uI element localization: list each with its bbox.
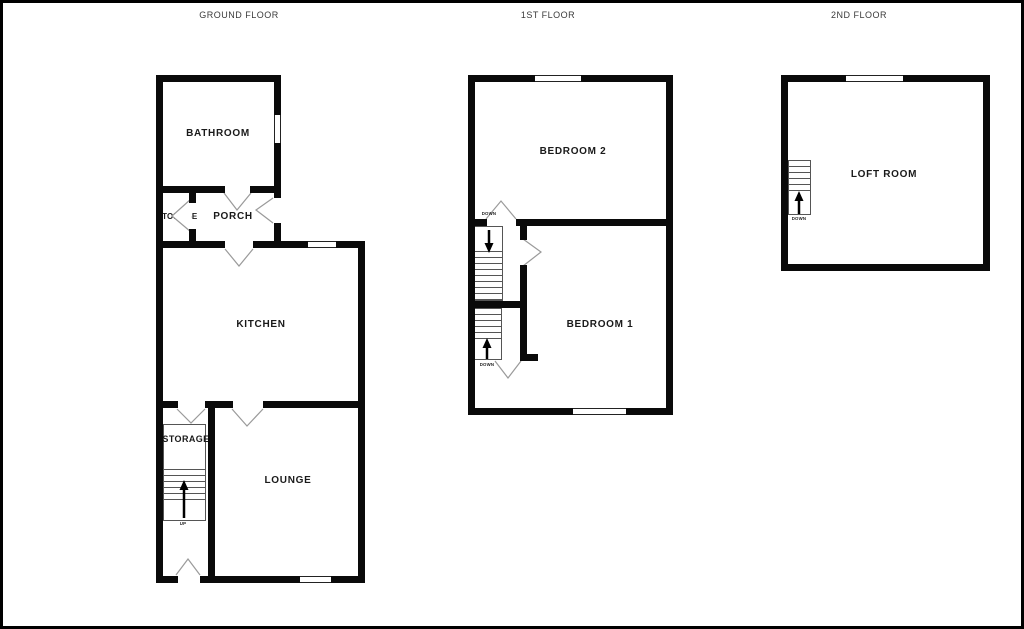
up-arrow-icon [482,338,492,360]
floor-title-ground: GROUND FLOOR [169,10,309,20]
wall-segment [156,75,281,82]
door-arc-porch-kitchen [224,248,255,268]
wall-segment [156,241,225,248]
stair-treads [472,251,503,301]
door-arc-front-entry [175,558,202,577]
window-bedroom1 [573,408,626,415]
wall-segment [156,576,178,583]
wall-segment [520,354,538,361]
wall-segment [903,75,990,82]
wall-segment [781,75,846,82]
down-arrow-icon [484,229,494,253]
room-label-porch: PORCH [198,211,268,222]
door-arc-bedroom2 [485,200,518,221]
wall-segment [263,401,365,408]
door-arc-lounge [231,408,265,428]
wall-segment [200,576,300,583]
wall-segment [250,186,281,193]
room-label-bathroom: BATHROOM [168,128,268,139]
stair-treads [472,308,502,342]
wall-segment [468,219,487,226]
door-arc-storage-bottom [176,408,207,425]
room-label-bedroom2: BEDROOM 2 [513,146,633,157]
floor-title-second: 2ND FLOOR [789,10,929,20]
wall-segment [520,265,527,361]
wall-segment [468,408,573,415]
window-lounge [300,576,331,583]
stair-direction-label: DOWN [475,212,504,216]
window-loft [846,75,903,82]
floorplan-canvas: GROUND FLOOR 1ST FLOOR 2ND FLOOR UP BATH… [0,0,1024,629]
stair-direction-label: DOWN [785,217,814,221]
wall-segment [626,408,673,415]
wall-segment [331,576,365,583]
storage-closet-outline [163,424,206,470]
door-arc-bathroom [223,192,252,212]
wall-segment [520,226,527,240]
stair-direction-label: DOWN [473,363,502,367]
wall-segment [156,75,163,583]
wall-segment [208,401,215,583]
wall-segment [781,75,788,271]
wall-segment [274,75,281,115]
wall-segment [983,75,990,271]
floor-title-first: 1ST FLOOR [478,10,618,20]
wall-segment [581,75,673,82]
wall-segment [516,219,673,226]
wall-segment [156,401,178,408]
room-label-kitchen: KITCHEN [211,319,311,330]
room-label-bedroom1: BEDROOM 1 [540,319,660,330]
wall-segment [666,75,673,415]
room-label-lounge: LOUNGE [238,475,338,486]
wall-segment [358,241,365,583]
stair-direction-label: UP [169,522,198,526]
wall-segment [468,301,527,308]
up-arrow-icon [794,191,804,215]
wall-segment [189,191,196,203]
wall-segment [781,264,990,271]
window-bedroom2 [535,75,581,82]
door-arc-landing [522,238,543,268]
wall-segment [253,241,308,248]
window-kitchen [308,241,336,248]
up-arrow-icon [179,480,189,520]
window-bathroom [274,115,281,143]
room-label-loft: LOFT ROOM [824,169,944,180]
wall-segment [468,75,535,82]
room-label-storage-bottom: STORAGE [159,434,213,444]
